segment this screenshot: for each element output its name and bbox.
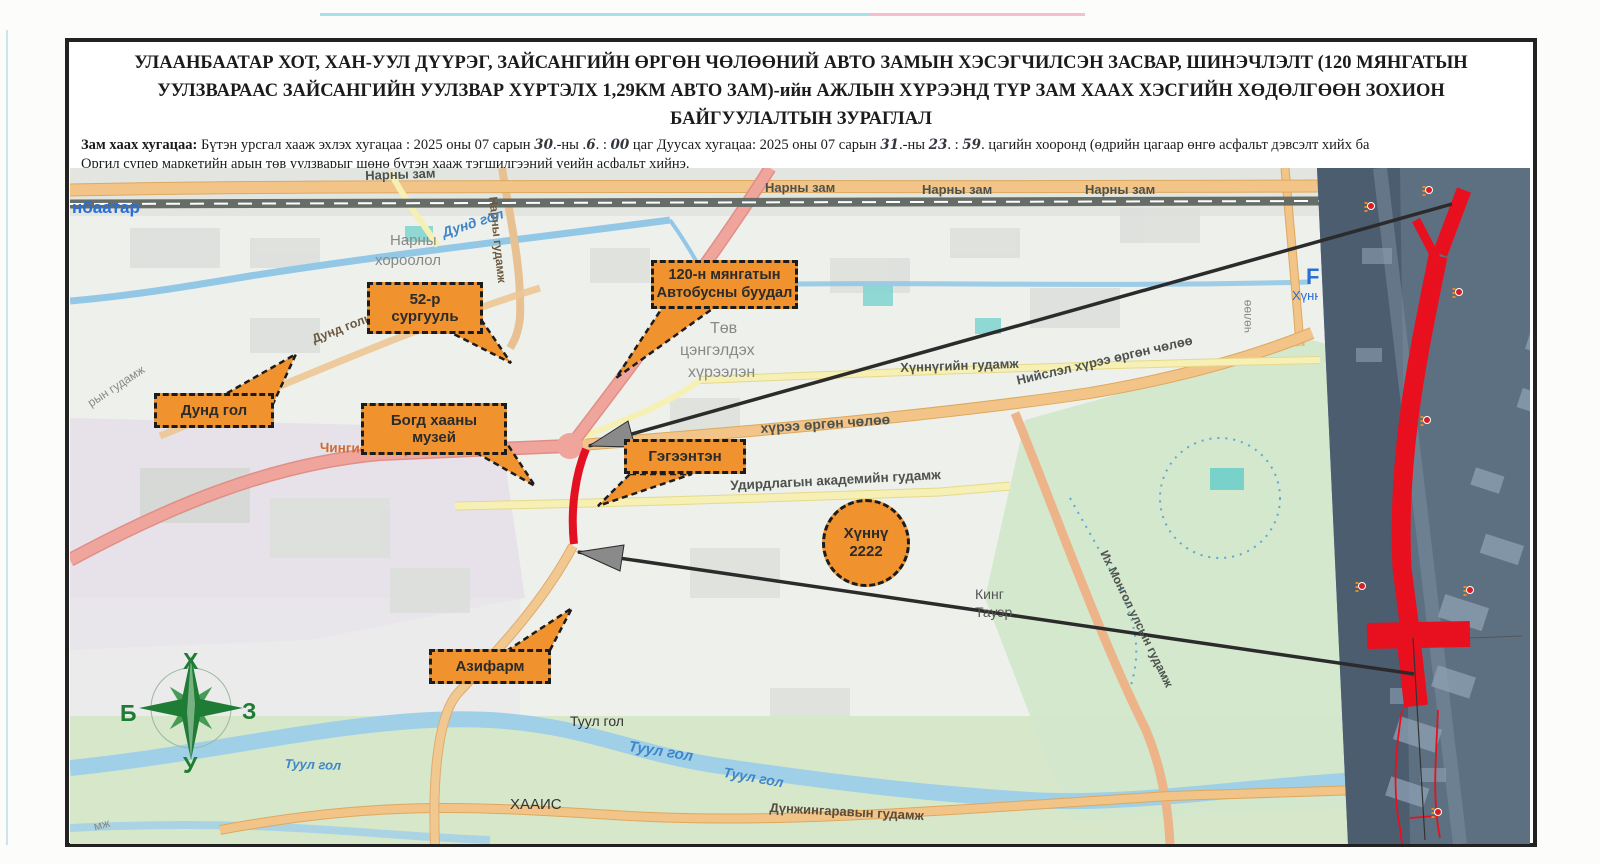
road-label-narny-zam-2: Нарны зам [765, 180, 835, 195]
compass-north-label: Х [183, 648, 198, 675]
callout-bogd-khan-museum: Богд хааны музей [361, 403, 507, 455]
poi-label-khunn-cut: Хүнн [1292, 288, 1318, 303]
handwritten-day-end: 31 [880, 137, 899, 153]
scan-artifact-left [6, 30, 8, 845]
poi-label-king-2: Тауэр [975, 604, 1012, 620]
handwritten-hour-start: 6 [586, 137, 595, 153]
compass-east-label: З [242, 698, 256, 725]
handwritten-day-start: 30 [534, 137, 553, 153]
scanned-road-closure-map-page: УЛААНБААТАР ХОТ, ХАН-УУЛ ДҮҮРЭГ, ЗАЙСАНГ… [0, 0, 1600, 864]
handwritten-minute-end: 59 [962, 137, 981, 153]
handwritten-hour-end: 23 [929, 137, 948, 153]
document-title: УЛААНБААТАР ХОТ, ХАН-УУЛ ДҮҮРЭГ, ЗАЙСАНГ… [79, 49, 1523, 133]
road-label-chuluu-vertical: чөлөө [1240, 300, 1254, 333]
area-label-park-3: хүрээлэн [688, 364, 755, 382]
road-label-narny-zam-4: Нарны зам [1085, 182, 1155, 197]
area-label-park-1: Төв [710, 320, 737, 338]
satellite-strip [1317, 168, 1530, 844]
road-label-narny-zam-3: Нарны зам [922, 182, 992, 197]
document-frame: УЛААНБААТАР ХОТ, ХАН-УУЛ ДҮҮРЭГ, ЗАЙСАНГ… [65, 38, 1537, 847]
scan-artifact-pink [870, 13, 1085, 16]
callout-azipharm: Азифарм [429, 649, 551, 684]
scan-artifact-cyan [320, 13, 870, 16]
road-label-narny-zam-1: Нарны зам [365, 168, 436, 183]
callout-khunnu-2222: Хүннү 2222 [822, 499, 910, 587]
title-line-1: УЛААНБААТАР ХОТ, ХАН-УУЛ ДҮҮРЭГ, ЗАЙСАНГ… [79, 49, 1523, 77]
callout-dund-gol: Дунд гол [154, 393, 274, 428]
callout-120k-bus-stop: 120-н мянгатын Автобусны буудал [651, 260, 798, 309]
compass-south-label: У [183, 752, 197, 779]
compass-west-label: Б [120, 700, 137, 727]
city-label-ulaanbaatar: нбаатар [72, 198, 140, 218]
callout-gegeenten: Гэгээнтэн [624, 439, 746, 474]
poi-label-khaais: ХААИС [510, 796, 562, 813]
callout-school-52: 52-р сургууль [367, 282, 483, 334]
title-line-2: УУЛЗВАРААС ЗАЙСАНГИЙН УУЛЗВАР ХҮРТЭЛХ 1,… [79, 77, 1523, 105]
river-label-tuul-black: Туул гол [570, 713, 624, 729]
city-map: Нарны зам Нарны зам Нарны зам Нарны зам … [70, 168, 1530, 844]
area-label-park-2: цэнгэлдэх [680, 342, 755, 360]
area-label-narny-1: Нарны [390, 232, 437, 249]
facebook-logo-letter: F [1306, 264, 1319, 290]
river-label-tuul-3: Туул гол [284, 756, 341, 773]
area-label-narny-2: хороолол [375, 252, 441, 269]
schedule-line-1: Зам хаах хугацаа: Бүтэн урсгал хааж эхлэ… [81, 136, 1521, 155]
junction [557, 433, 583, 459]
handwritten-minute-start: 00 [611, 137, 630, 153]
title-line-3: БАЙГУУЛАЛТЫН ЗУРАГЛАЛ [79, 105, 1523, 133]
poi-label-king-1: Кинг [975, 586, 1004, 602]
